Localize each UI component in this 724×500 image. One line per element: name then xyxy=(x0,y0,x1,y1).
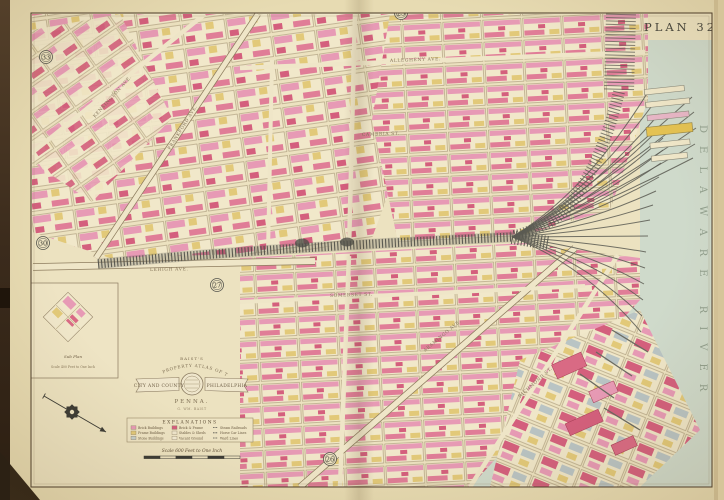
binding-notch xyxy=(0,288,10,308)
atlas-scan: LEHIGH AVE.FRANKFORD AVE.KENSINGTON AVE.… xyxy=(0,0,724,500)
paper-vignette xyxy=(10,0,718,500)
map-svg: LEHIGH AVE.FRANKFORD AVE.KENSINGTON AVE.… xyxy=(0,0,724,500)
